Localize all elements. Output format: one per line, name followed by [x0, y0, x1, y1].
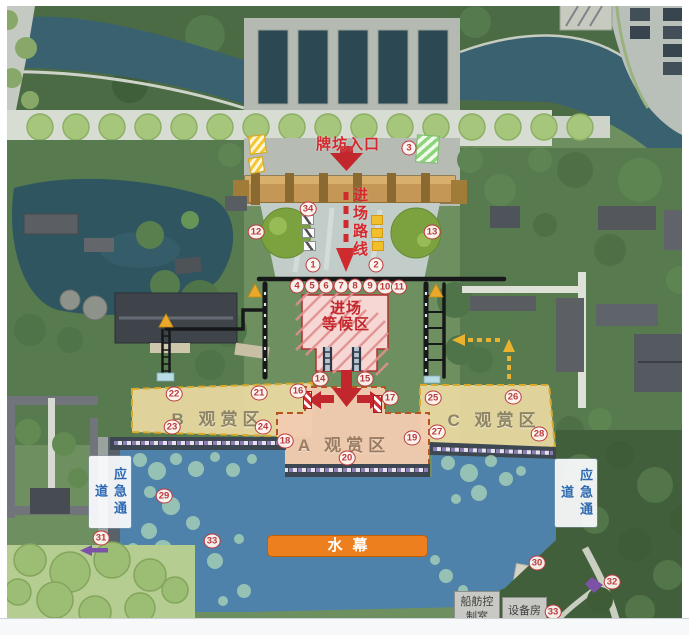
emergency-passage-left-label: 应急通道 — [89, 456, 131, 528]
red-stripe-barrier — [373, 395, 382, 413]
bike-shelter — [560, 4, 612, 30]
marker-26: 26 — [505, 390, 522, 405]
marker-7: 7 — [334, 279, 349, 294]
yellow-square — [371, 215, 383, 225]
marker-12: 12 — [248, 225, 265, 240]
frame-right — [682, 0, 689, 635]
waiting-area-label: 进场 等候区 — [301, 301, 391, 333]
marker-27: 27 — [429, 425, 446, 440]
marker-1: 1 — [306, 258, 321, 273]
marker-33: 33 — [204, 534, 221, 549]
entrance-label: 牌坊入口 — [300, 133, 396, 154]
marker-15: 15 — [357, 372, 374, 387]
aerial-site-plan: 牌坊入口 进场路线 进场 等候区 B 观赏区 A 观赏区 C 观赏区 应急通道 … — [0, 0, 689, 635]
marker-22: 22 — [166, 387, 183, 402]
emergency-passage-right-label: 应急通道 — [555, 459, 597, 527]
waiting-line2: 等候区 — [322, 316, 370, 333]
waiting-line1: 进场 — [330, 300, 362, 317]
frame-top — [0, 0, 689, 6]
marker-19: 19 — [404, 431, 421, 446]
marker-24: 24 — [255, 420, 272, 435]
yellow-square — [371, 228, 383, 238]
marker-33: 33 — [545, 605, 562, 620]
pond-pavilion — [225, 196, 247, 211]
marker-18: 18 — [277, 434, 294, 449]
marker-29: 29 — [156, 489, 173, 504]
marker-32: 32 — [604, 575, 621, 590]
marker-31: 31 — [93, 531, 110, 546]
marker-14: 14 — [312, 372, 329, 387]
marker-3: 3 — [402, 141, 417, 156]
marker-13: 13 — [424, 225, 441, 240]
marker-34: 34 — [300, 202, 317, 217]
white-slash-box — [302, 228, 315, 238]
white-slash-box — [303, 241, 316, 251]
yellow-hatch-box — [248, 134, 267, 155]
marker-20: 20 — [339, 451, 356, 466]
green-hatch-box — [415, 134, 440, 164]
water-curtain-label: 水幕 — [267, 535, 428, 557]
site-plan-screenshot: 牌坊入口 进场路线 进场 等候区 B 观赏区 A 观赏区 C 观赏区 应急通道 … — [0, 0, 689, 635]
frame-left — [0, 0, 7, 635]
marker-2: 2 — [369, 258, 384, 273]
marker-17: 17 — [382, 391, 399, 406]
marker-4: 4 — [290, 279, 305, 294]
zone-c-label: C 观赏区 — [444, 406, 544, 431]
marker-28: 28 — [531, 427, 548, 442]
yellow-hatch-box — [248, 156, 266, 174]
route-label: 进场路线 — [349, 187, 370, 271]
yellow-square — [372, 241, 384, 251]
zone-b-label: B 观赏区 — [168, 405, 268, 430]
marker-11: 11 — [391, 280, 407, 295]
north-plaza-pools — [244, 18, 460, 122]
white-slash-box — [301, 215, 314, 225]
marker-25: 25 — [425, 391, 442, 406]
marker-6: 6 — [319, 279, 334, 294]
marker-8: 8 — [348, 279, 363, 294]
frame-bottom — [0, 619, 689, 635]
marker-9: 9 — [363, 279, 378, 294]
marker-16: 16 — [290, 384, 307, 399]
marker-21: 21 — [251, 386, 268, 401]
marker-23: 23 — [164, 420, 181, 435]
marker-5: 5 — [305, 279, 320, 294]
marker-30: 30 — [529, 556, 546, 571]
